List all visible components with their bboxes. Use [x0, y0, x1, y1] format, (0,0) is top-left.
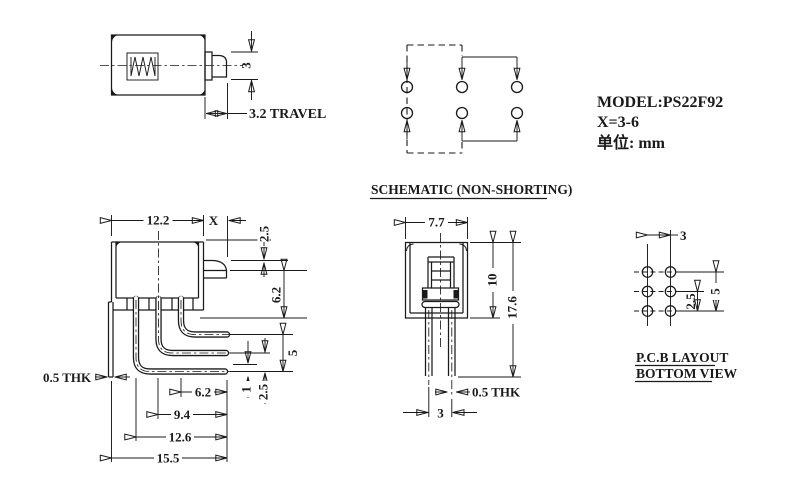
dim-pin-span: 5 [285, 349, 300, 356]
actuator-flange [205, 52, 212, 80]
side-thickness-label: 0.5 THK [43, 370, 92, 385]
dim-travel: 3.2 TRAVEL [249, 107, 326, 122]
pcb-title-line1: P.C.B LAYOUT [636, 350, 728, 365]
dim-body-width: 12.2 [147, 213, 170, 228]
front-thickness-label: 0.5 THK [472, 385, 521, 400]
top-view: 3 3.2 TRAVEL [100, 31, 326, 122]
dim-front-width: 7.7 [428, 215, 445, 230]
dim-hole-col-pitch: 3 [680, 228, 687, 243]
front-view: 7.7 10 [403, 215, 521, 421]
side-actuator [204, 261, 227, 279]
dim-hole-row-pitch: 2.5 [683, 293, 698, 310]
pcb-title-line2: BOTTOM VIEW [636, 366, 738, 381]
actuator-shaft [212, 56, 227, 78]
dim-actuator-to-base: 6.2 [269, 287, 284, 303]
schematic-view: SCHEMATIC (NON-SHORTING) [370, 45, 572, 199]
corner-mark [112, 35, 120, 43]
spring-symbol [131, 57, 155, 76]
dim-pin-len-4: 15.5 [157, 451, 180, 466]
schematic-title: SCHEMATIC (NON-SHORTING) [371, 182, 572, 197]
dim-pin-offset: 1 [239, 386, 254, 393]
contact-open [512, 108, 523, 119]
dim-pin-len-2: 9.4 [174, 407, 191, 422]
dim-hole-row-span: 5 [708, 288, 723, 295]
dim-actuator-len: X [209, 213, 219, 228]
dim-top-to-actuator: 2.5 [257, 225, 272, 242]
corner-mark [192, 242, 199, 249]
model-number: MODEL:PS22F92 [597, 94, 723, 111]
corner-mark [198, 35, 206, 43]
corner-mark [116, 242, 123, 249]
drawing-page: 3 3.2 TRAVEL SCHEMATIC (NON-SHORTING) [0, 0, 800, 480]
model-info: MODEL:PS22F92 X=3-6 单位: mm [597, 94, 723, 152]
drawing-canvas: 3 3.2 TRAVEL SCHEMATIC (NON-SHORTING) [0, 0, 800, 480]
dim-pin-len-3: 12.6 [169, 430, 192, 445]
pin-outline [159, 299, 227, 353]
dim-actuator-height: 3 [239, 62, 254, 69]
x-range: X=3-6 [597, 114, 639, 131]
dim-total-height: 17.6 [505, 296, 520, 319]
dim-body-height: 10 [485, 274, 500, 287]
corner-mark [198, 88, 206, 96]
contact-common [457, 108, 468, 119]
side-view: 12.2 X 2.5 6.2 5 2.5 1 0.5 THK [43, 213, 307, 466]
unit-note: 单位: mm [597, 133, 666, 152]
corner-mark [112, 88, 120, 96]
contact-open [512, 82, 523, 93]
pcb-layout-view: 3 2.5 5 P.C.B LAYOUT BOTTOM VIEW [634, 228, 738, 382]
dim-pin-pitch: 2.5 [256, 383, 271, 400]
dim-front-pin-pitch: 3 [437, 406, 444, 421]
dim-pin-len-1: 6.2 [195, 385, 211, 400]
contact-common [457, 82, 468, 93]
